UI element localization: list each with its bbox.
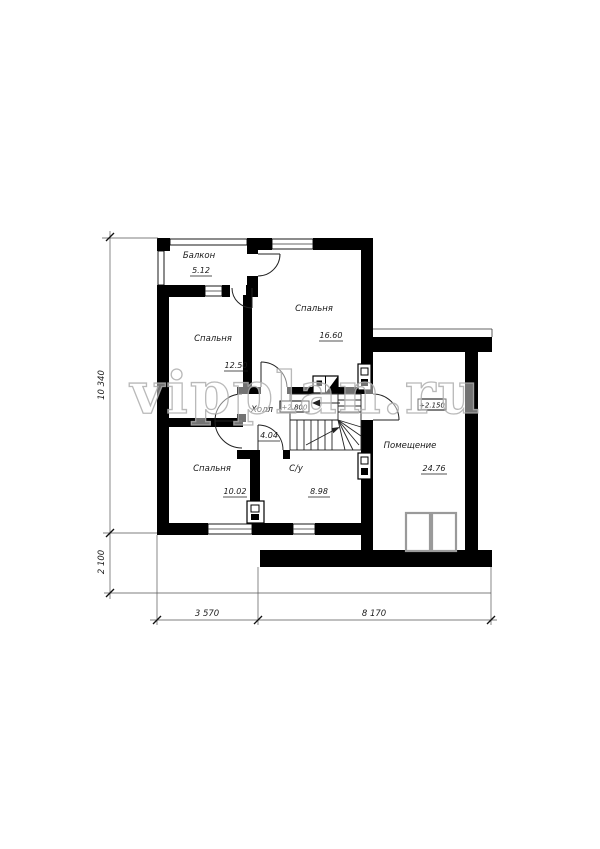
dim-left-upper: 10 340 (97, 370, 107, 400)
dim-left-lower: 2 100 (97, 550, 107, 574)
bedroom-top-balcony-door-arc (258, 254, 280, 276)
room-area-balcony: 5.12 (192, 266, 210, 275)
floor-plan-canvas: Балкон 5.12 Спальня 16.60 Спальня 12.50 … (0, 0, 600, 849)
room-area-hall: 4.04 (260, 431, 278, 440)
vent-shaft-icon (247, 501, 264, 523)
floor-plan-page: Балкон 5.12 Спальня 16.60 Спальня 12.50 … (0, 0, 600, 849)
room-label-bathroom: С/у (289, 464, 304, 474)
room-area-bedroom-bottom: 10.02 (224, 487, 247, 496)
vent-shaft-icon (358, 453, 371, 479)
watermark-text: vipplan.ru (128, 359, 482, 427)
dim-bottom-left: 3 570 (195, 609, 219, 619)
room-area-bedroom-top: 16.60 (320, 331, 343, 340)
room-area-annex: 24.76 (423, 464, 446, 473)
balcony-railing-top (170, 239, 247, 245)
room-label-balcony: Балкон (183, 251, 216, 261)
room-label-bedroom-top: Спальня (295, 304, 333, 314)
room-label-bedroom-bottom: Спальня (193, 464, 231, 474)
roof-shaft (406, 513, 430, 551)
dim-bottom-right: 8 170 (362, 609, 386, 619)
roof-shaft (432, 513, 456, 551)
room-label-annex: Помещение (384, 441, 437, 451)
room-label-bedroom-left: Спальня (194, 334, 232, 344)
balcony-railing-left (158, 251, 164, 285)
room-area-bathroom: 8.98 (310, 487, 328, 496)
